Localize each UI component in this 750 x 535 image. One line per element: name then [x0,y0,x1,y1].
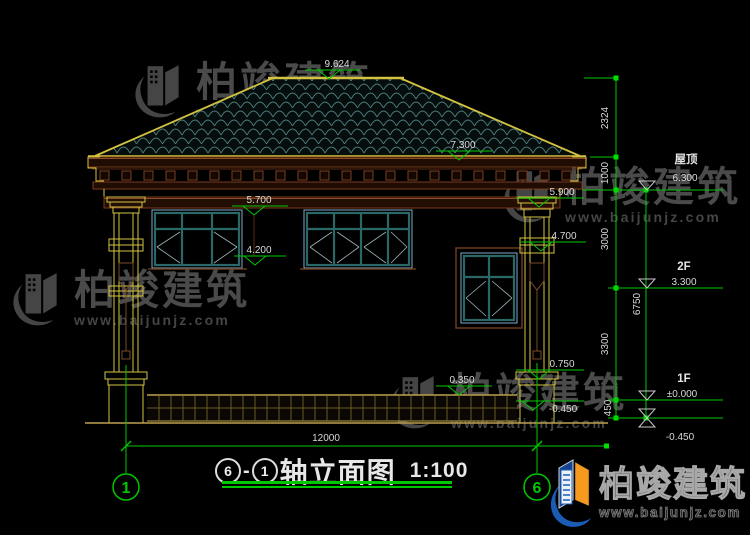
spot-ridge-value: 9.624 [324,59,349,70]
level-roof-label: 屋顶 [675,152,698,166]
title-dash: - [243,460,250,483]
spot-rail: 0.750 [516,359,584,379]
level-2f-label: 2F [677,261,690,273]
spot-window-top-value: 5.700 [246,195,271,206]
chain-dim-450: 450 [603,399,614,416]
brand-logo-url: www.baijunjz.com [599,505,747,520]
spot-window-sill-value: 4.200 [246,245,271,256]
eave-cornice [88,157,586,197]
title-scale: 1:100 [410,459,469,483]
window-2f-right [300,210,416,269]
chain-dim-1000: 1000 [600,161,611,184]
window-stair [456,248,522,328]
axis-bubble-6-label: 6 [533,480,542,497]
spot-capital-value: 4.700 [551,231,576,242]
window-2f-left [148,210,247,269]
spot-ridge: 9.624 [305,59,360,79]
hip-roof [88,78,586,156]
spot-porch-value: 5.900 [549,187,574,198]
level-marks-right: 屋顶 6.300 2F 3.300 1F ±0.000 -0.450 [582,152,723,443]
title-underline [222,486,452,489]
level-1f-value: ±0.000 [667,389,698,400]
title-underline [222,481,452,484]
level-roof-value: 6.300 [672,173,697,184]
chain-dim-3000: 3000 [600,227,611,250]
dentil-row [100,171,571,180]
dim-width-value: 12000 [312,433,340,444]
brand-logo: 柏竣建筑 www.baijunjz.com [546,456,747,530]
spot-ground: -0.450 [516,401,584,415]
spot-plinth: 0.350 [436,375,492,395]
spot-ground-value: -0.450 [549,404,578,415]
level-1f: 1F ±0.000 [608,373,723,400]
chain-dim-2324: 2324 [600,106,611,129]
brand-logo-text: 柏竣建筑 [599,467,747,502]
brand-logo-icon [546,456,594,530]
wall-band [104,197,560,208]
spot-plinth-value: 0.350 [449,375,474,386]
chain-dim-6750: 6750 [632,292,643,315]
level-ground: -0.450 [608,409,723,443]
chain-dim-3300: 3300 [600,332,611,355]
plinth [147,395,517,421]
downspout-right [530,263,544,359]
axis-bubble-1-label: 1 [122,480,131,497]
level-1f-label: 1F [677,373,690,385]
dimension-chain-right: 2324 1000 3000 3300 450 6750 [584,76,649,421]
level-2f: 2F 3.300 [608,261,723,288]
downspout-left [119,263,133,359]
spot-rail-value: 0.750 [549,359,574,370]
level-2f-value: 3.300 [671,277,696,288]
cad-canvas: 柏竣建筑 www.baijunjz.com 柏竣建筑 www.baijunjz.… [0,0,750,535]
level-ground-value: -0.450 [666,432,695,443]
spot-eave-value: 7.300 [450,140,475,151]
